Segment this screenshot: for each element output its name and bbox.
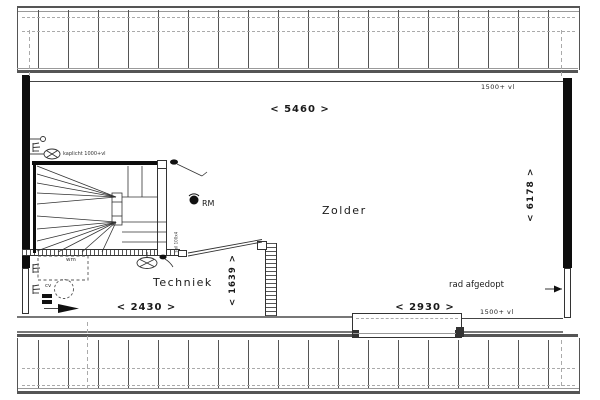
dimension-right-height: < 6178 > [526, 172, 536, 222]
dimension-techniek-height: < 1639 > [228, 266, 238, 306]
dimension-bottom-right-width: < 2930 > [387, 302, 463, 313]
washing-machine-outline [38, 256, 88, 280]
radiator-arrow [545, 286, 562, 293]
drawing-linework [0, 0, 600, 400]
label-smoke-detector: RM [202, 199, 214, 208]
note-knee-wall-top: 1500+ vl [481, 83, 515, 91]
room-label-techniek: Techniek [153, 276, 213, 289]
smoke-detector-icon [189, 194, 199, 205]
room-label-zolder: Zolder [322, 204, 367, 217]
label-stair-note: spil 100x4 [174, 217, 179, 253]
staircase [37, 166, 167, 252]
vent-triangle-icon [44, 304, 79, 313]
wall-point-icon [159, 255, 173, 267]
light-icon [30, 149, 60, 159]
stair-light-point [170, 159, 207, 176]
extractor-fan-icon [137, 252, 157, 269]
label-washing-machine: wm [66, 257, 76, 263]
note-radiator: rad afgedopt [449, 280, 504, 290]
dimension-top-width: < 5460 > [260, 104, 340, 115]
socket-icon [42, 294, 52, 304]
label-attic-light: kaplicht 1000+vl [63, 151, 106, 157]
boiler-icon [55, 280, 74, 299]
dimension-bottom-left-width: < 2430 > [109, 302, 184, 313]
label-central-heating: cv [45, 283, 51, 289]
floor-plan-attic: < 5460 > < 6178 > < 2430 > < 2930 > < 16… [0, 0, 600, 400]
switch-icon [33, 143, 40, 294]
note-knee-wall-bottom: 1500+ vl [480, 308, 514, 316]
techniek-door [188, 240, 262, 257]
ceiling-point-icon [30, 137, 46, 142]
